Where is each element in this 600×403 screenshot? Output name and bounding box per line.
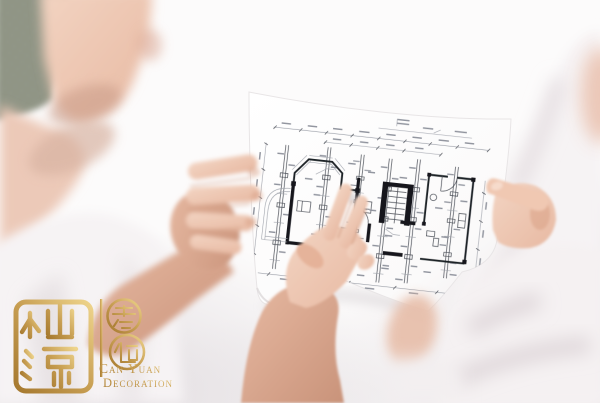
photo-canvas: Can Yuan Decoration <box>0 0 600 403</box>
brand-name: Can Yuan <box>99 361 161 376</box>
brand-subtitle: Decoration <box>103 376 173 390</box>
